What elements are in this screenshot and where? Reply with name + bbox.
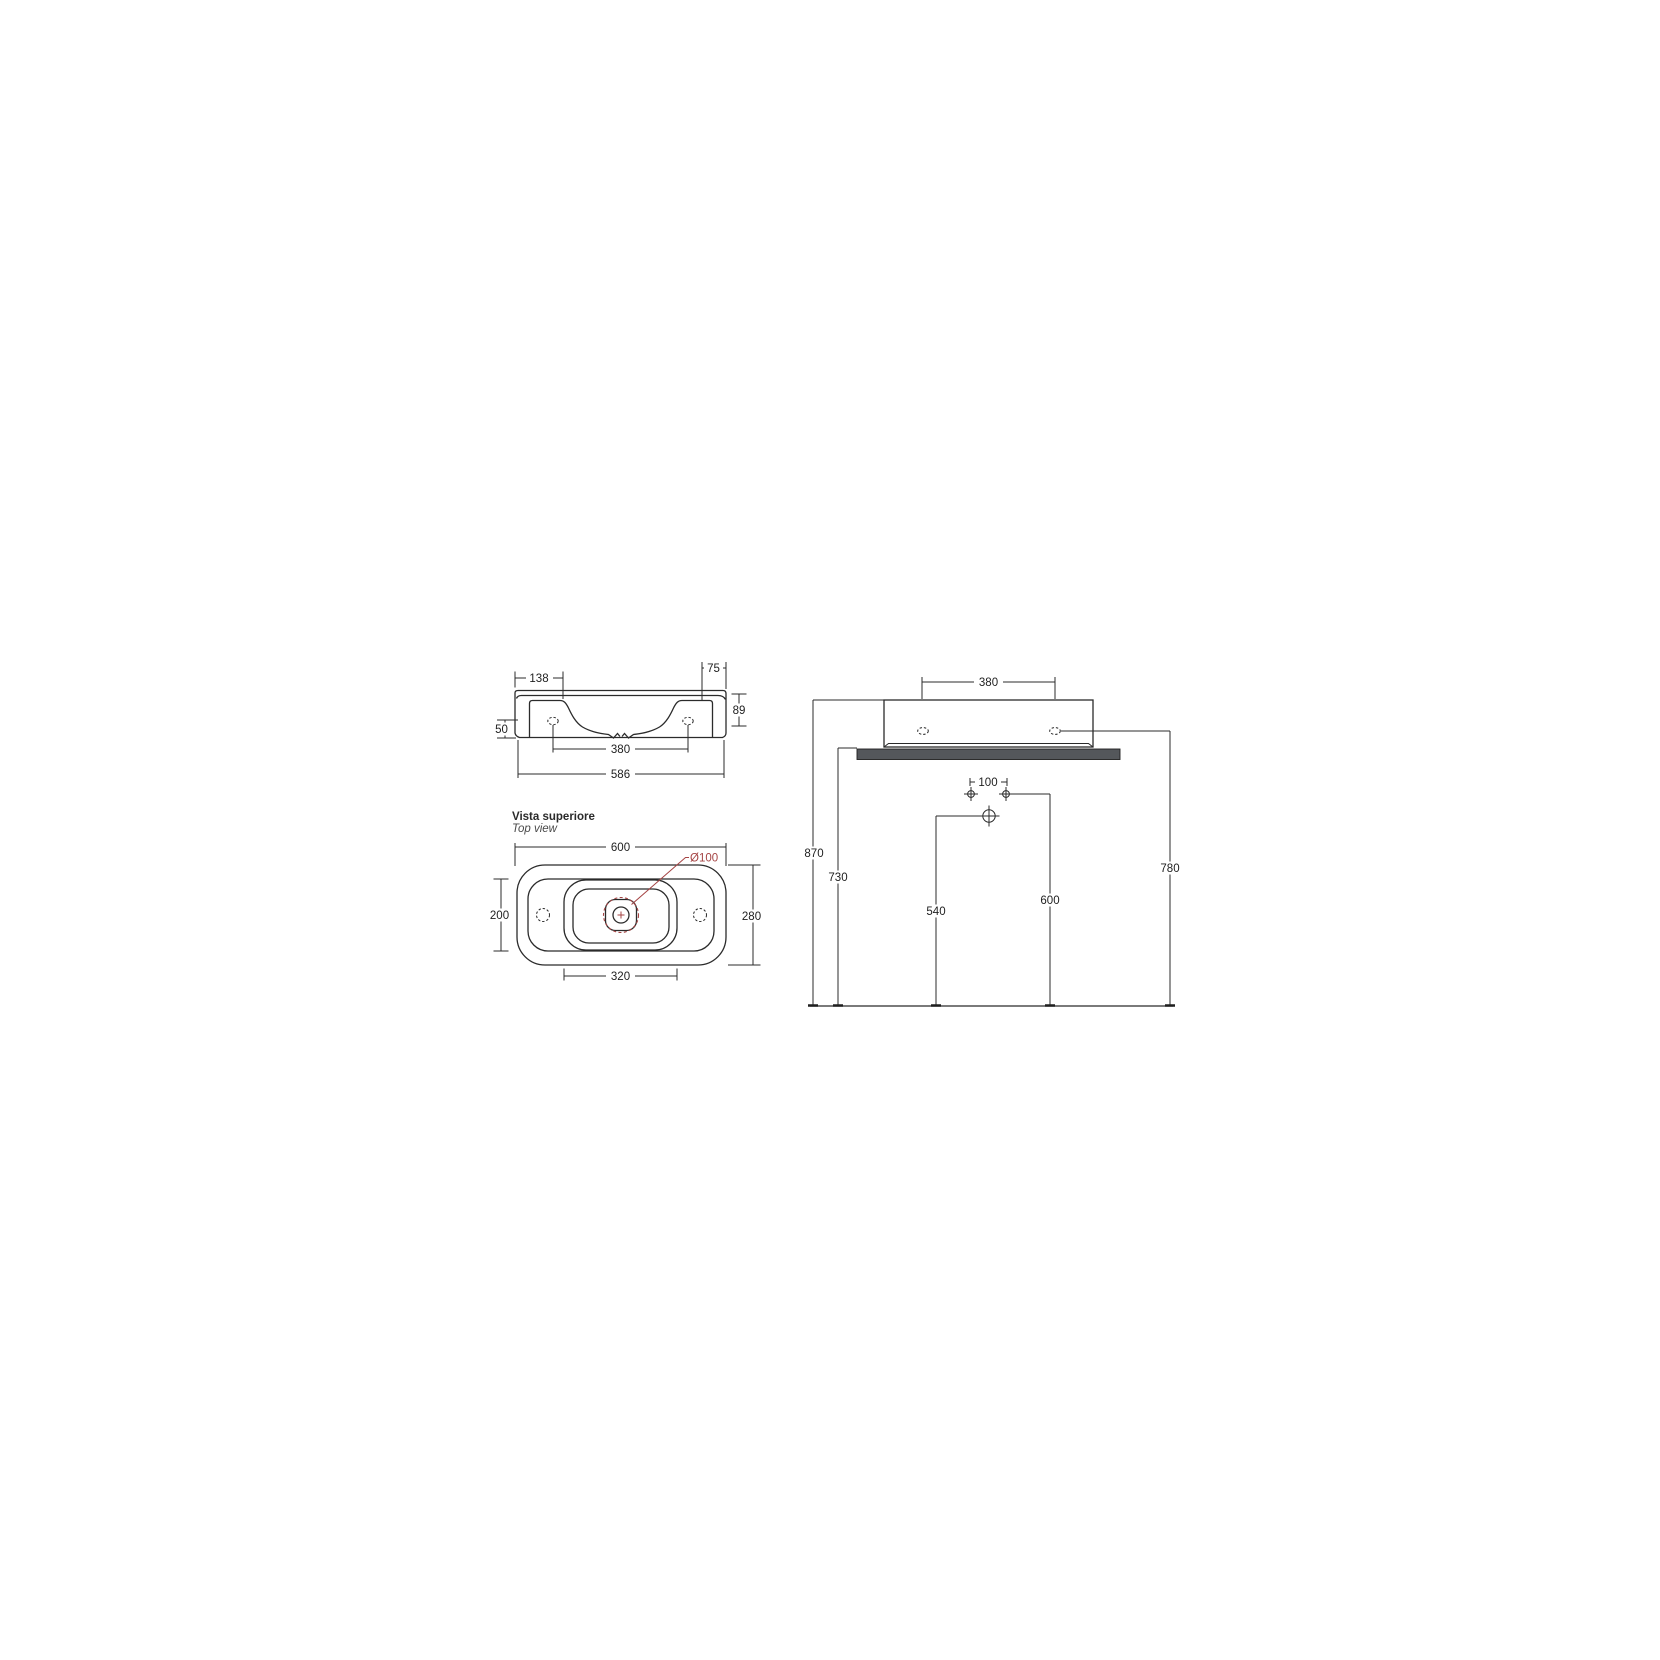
dim-label-200: 200 (485, 909, 514, 923)
fixing-hole-left-icon (918, 728, 929, 735)
dim-label-280: 280 (737, 910, 766, 924)
dim-line-780 (1061, 731, 1170, 1006)
faucet-hole-right-icon (694, 909, 707, 922)
dim-label-540: 540 (922, 905, 951, 919)
dim-value: 600 (611, 842, 630, 854)
dim-label-870: 870 (800, 847, 829, 861)
basin-front-rect (884, 700, 1093, 747)
fixing-hole-right-icon (1050, 728, 1061, 735)
dim-value: 380 (979, 677, 998, 689)
dim-value: 540 (926, 906, 945, 918)
dim-value: 50 (495, 724, 508, 736)
dim-label-380: 380 (606, 743, 635, 757)
dim-value: 586 (611, 769, 630, 781)
dim-value: 100 (978, 777, 997, 789)
dim-value: 75 (707, 663, 720, 675)
basin-rim-line (517, 696, 726, 700)
dim-label-75: 75 (704, 662, 723, 676)
installation-drawing: 380 100 (800, 676, 1185, 1007)
water-supply-right-icon (999, 787, 1013, 801)
dim-label-100: 100 (975, 776, 1001, 790)
top-view-subtitle: Top view (512, 823, 558, 835)
dim-label-89: 89 (730, 704, 748, 718)
drain-center-cross-icon (618, 912, 625, 919)
dim-value: 200 (490, 910, 509, 922)
dim-label-586: 586 (606, 768, 635, 782)
fixing-hole-right-icon (683, 717, 693, 724)
bowl-profile-right (622, 701, 713, 739)
bowl-profile-left (530, 701, 621, 739)
dim-label-730: 730 (824, 871, 853, 885)
dim-value: 280 (742, 911, 761, 923)
dim-value: 320 (611, 971, 630, 983)
dim-label-138: 138 (526, 672, 553, 686)
dim-label-320: 320 (606, 970, 635, 984)
fixing-hole-left-icon (548, 717, 558, 724)
water-supply-left-icon (964, 787, 978, 801)
dim-label-380-install: 380 (974, 676, 1003, 690)
dim-label-drain-diameter: Ø100 (690, 853, 718, 865)
technical-drawing-sheet: 138 75 89 50 380 586 (0, 0, 1660, 1660)
top-view-title: Vista superiore (512, 811, 595, 823)
drain-outlet-icon (979, 806, 1000, 827)
dim-value: 89 (733, 705, 746, 717)
front-view-drawing: 138 75 89 50 380 586 (492, 662, 748, 782)
dim-value: 780 (1160, 863, 1179, 875)
counter-shelf (857, 749, 1120, 760)
dim-label-780: 780 (1156, 862, 1185, 876)
dim-value: 730 (828, 872, 847, 884)
dim-label-600-install: 600 (1036, 894, 1065, 908)
top-view-drawing: Vista superiore Top view Ø100 600 200 (485, 811, 766, 983)
dim-value: 870 (804, 848, 823, 860)
faucet-hole-left-icon (537, 909, 550, 922)
dim-label-600-top: 600 (606, 841, 635, 855)
dim-value: 600 (1040, 895, 1059, 907)
basin-outline (515, 691, 726, 738)
dim-label-50: 50 (492, 723, 511, 737)
dim-value: 138 (529, 673, 548, 685)
dim-value: 380 (611, 744, 630, 756)
